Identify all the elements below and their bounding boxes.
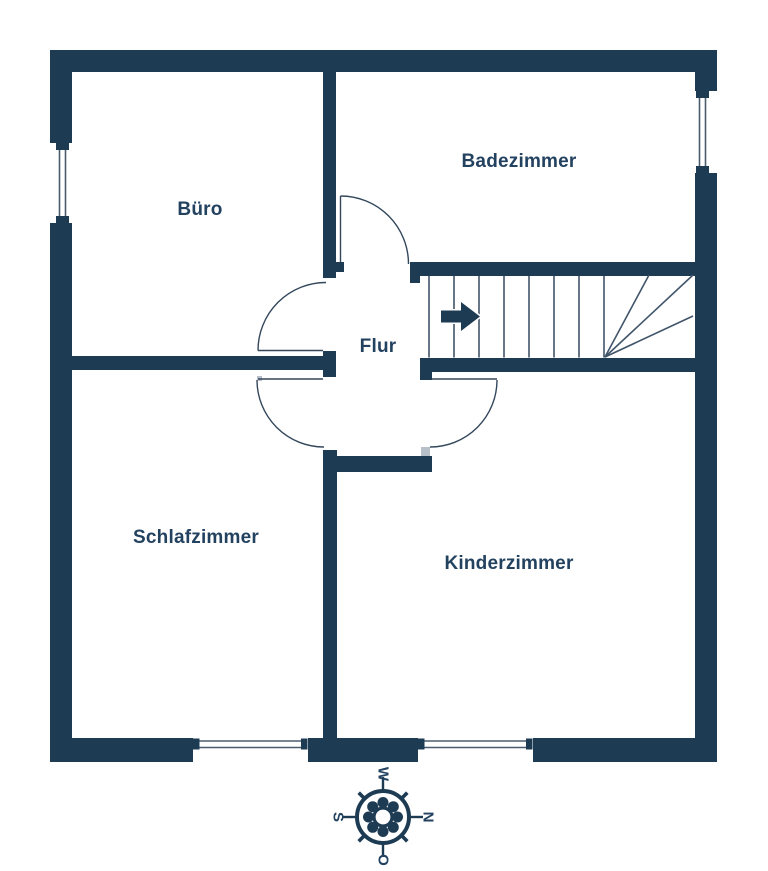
wall-buero-notch — [336, 262, 344, 272]
stair-winder-line — [605, 275, 649, 357]
window-cap — [696, 91, 709, 98]
compass-petals — [363, 797, 403, 837]
wall-stairs-bottom — [420, 358, 696, 372]
door-badezimmer — [341, 196, 409, 264]
door-jamb-right — [421, 447, 430, 456]
floor-plan: Büro Badezimmer Flur Schlafzimmer Kinder… — [0, 0, 768, 871]
compass-letter-west: W — [375, 767, 392, 781]
wall-badezimmer-stub — [410, 276, 420, 283]
compass-letter-north: N — [420, 812, 437, 823]
door-kinderzimmer — [430, 379, 497, 447]
wall-badezimmer-bottom — [410, 262, 696, 276]
room-label-badezimmer: Badezimmer — [462, 151, 577, 173]
floor-plan-drawing — [0, 0, 768, 871]
window-bottom-right — [418, 738, 533, 762]
staircase — [429, 275, 693, 358]
compass-letter-south: S — [330, 812, 347, 822]
window-left — [50, 143, 72, 223]
window-cap — [56, 216, 69, 223]
room-label-flur: Flur — [360, 336, 397, 358]
window-cap — [696, 166, 709, 173]
wall-bottom — [50, 738, 717, 762]
wall-top — [50, 50, 717, 72]
door-swing-arc — [257, 380, 324, 447]
window-cap — [526, 739, 533, 750]
exterior-walls — [50, 50, 717, 762]
door-buero — [258, 283, 326, 351]
room-label-schlafzimmer: Schlafzimmer — [133, 527, 259, 549]
room-label-buero: Büro — [177, 199, 222, 221]
window-cap — [193, 739, 200, 750]
door-swing-arc — [258, 283, 326, 351]
stairs-direction-arrow-icon — [441, 302, 480, 331]
window-cap — [418, 739, 425, 750]
wall-alcove-bottom — [323, 456, 432, 472]
stair-winder-line — [605, 316, 693, 357]
door-swing-arc — [341, 196, 409, 264]
compass-rose-icon — [343, 777, 423, 857]
window-cap — [56, 143, 69, 150]
compass-spokes — [343, 777, 423, 857]
room-label-kinderzimmer: Kinderzimmer — [444, 553, 573, 575]
window-cap — [301, 739, 308, 750]
stair-winder-line — [605, 275, 693, 357]
window-bottom-left — [193, 738, 308, 762]
compass-letter-east: O — [375, 854, 392, 866]
wall-mid-stub — [323, 351, 336, 377]
wall-stairs-stub — [420, 372, 432, 380]
compass-hub — [374, 808, 392, 826]
wall-mid-left — [72, 356, 323, 370]
window-right — [695, 91, 717, 173]
door-schlafzimmer — [257, 379, 324, 447]
interior-walls — [72, 72, 696, 738]
wall-room-divider — [323, 450, 337, 738]
wall-buero-right — [323, 72, 336, 278]
window-opening — [50, 143, 72, 223]
door-swing-arc — [430, 380, 497, 447]
